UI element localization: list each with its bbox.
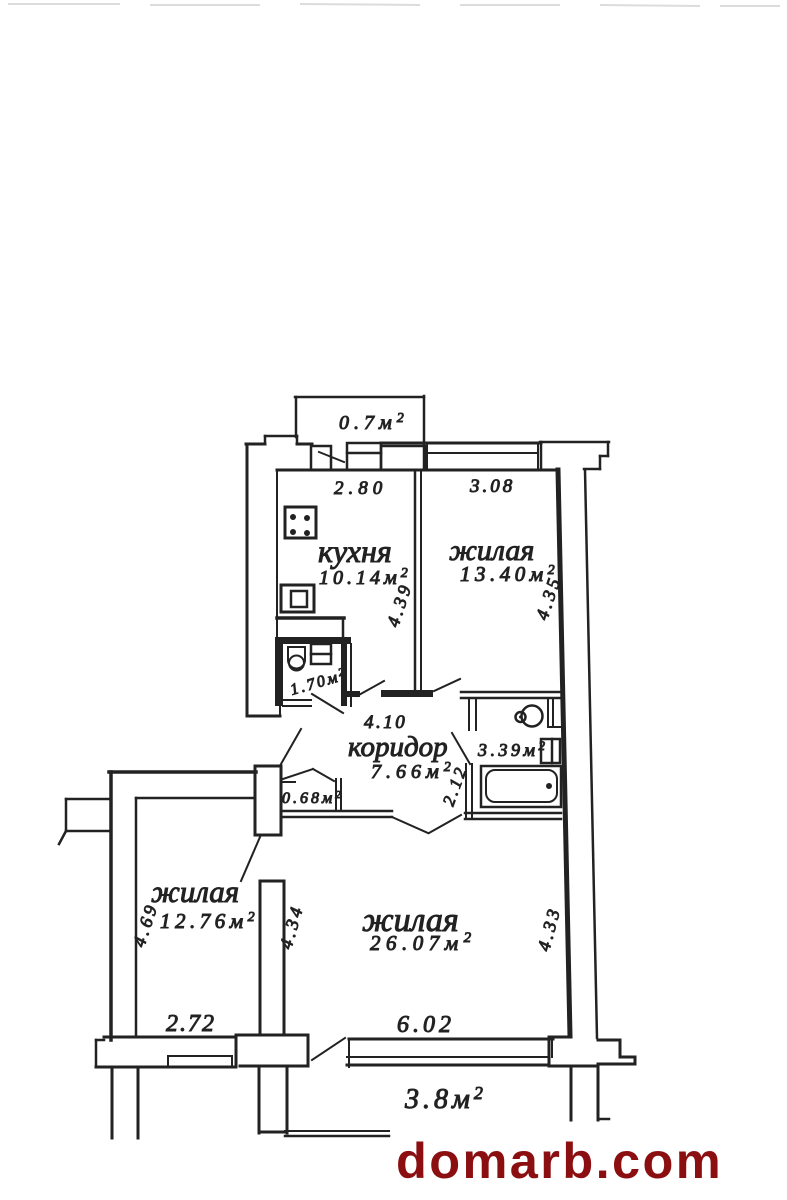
svg-text:0.68м2: 0.68м2 <box>282 789 341 807</box>
svg-text:26.07м2: 26.07м2 <box>370 930 472 955</box>
svg-text:13.40м2: 13.40м2 <box>460 562 555 586</box>
svg-text:кухня: кухня <box>318 533 392 569</box>
svg-text:domarb.com: domarb.com <box>396 1132 723 1189</box>
svg-text:2.80: 2.80 <box>334 478 387 499</box>
svg-text:4.10: 4.10 <box>364 712 407 733</box>
svg-text:0.7м2: 0.7м2 <box>339 411 404 434</box>
svg-text:2.72: 2.72 <box>166 1011 216 1037</box>
svg-text:коридор: коридор <box>348 731 448 763</box>
svg-text:6.02: 6.02 <box>397 1012 455 1038</box>
svg-text:12.76м2: 12.76м2 <box>160 909 255 933</box>
svg-text:3.39м2: 3.39м2 <box>477 738 546 760</box>
svg-text:3.8м2: 3.8м2 <box>404 1083 483 1115</box>
svg-text:жилая: жилая <box>151 874 239 909</box>
svg-text:3.08: 3.08 <box>469 476 515 497</box>
svg-text:7.66м2: 7.66м2 <box>371 760 451 783</box>
